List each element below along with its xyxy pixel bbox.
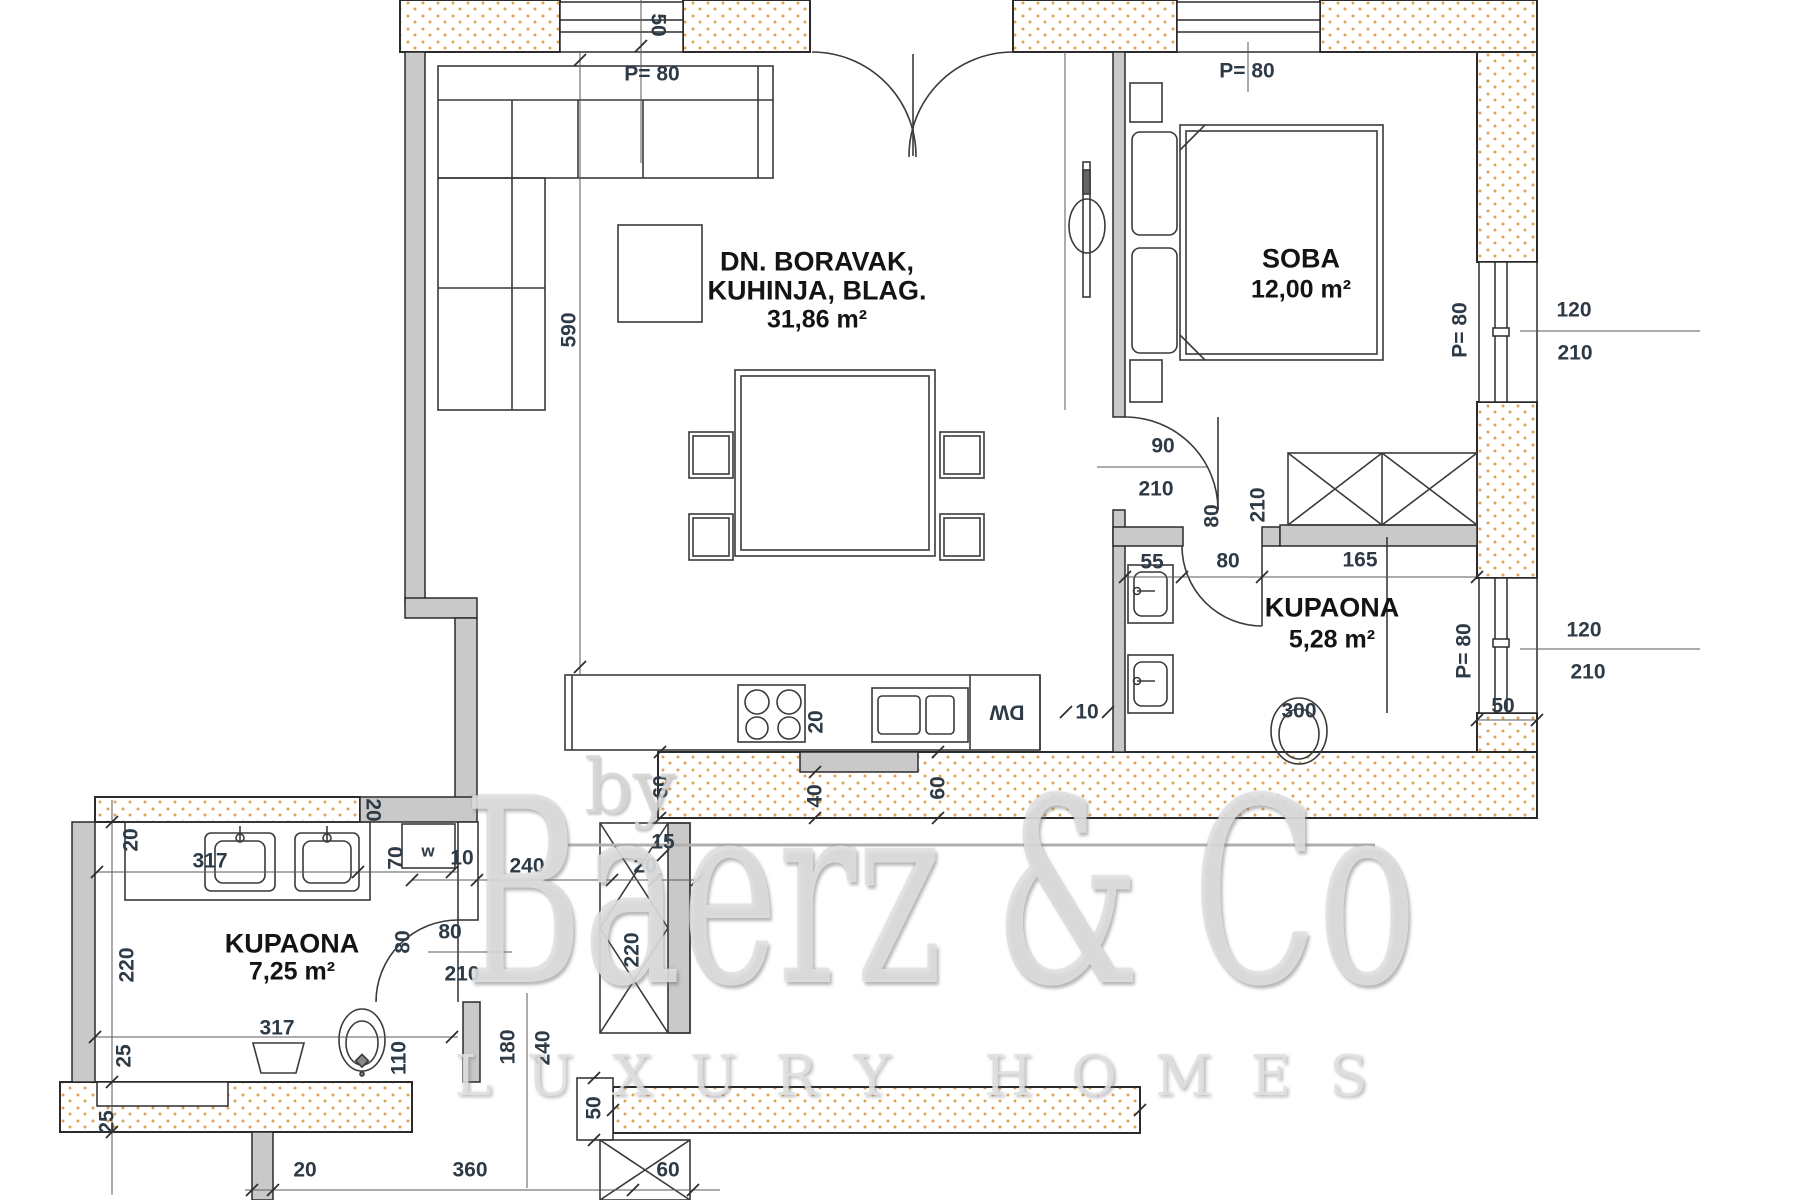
dimension-label: 590 xyxy=(559,312,580,347)
dimension-label: 70 xyxy=(386,846,407,869)
dimension-label: w xyxy=(421,843,434,860)
dimension-label: 210 xyxy=(1557,343,1592,364)
dimension-label: P= 80 xyxy=(1450,302,1471,357)
dimension-label: 360 xyxy=(452,1160,487,1181)
room-label-bedroom: 12,00 m² xyxy=(1251,278,1351,303)
dimension-label: 25 xyxy=(114,1044,135,1067)
dimension-label: 220 xyxy=(622,932,643,967)
dimension-label: 60 xyxy=(928,776,949,799)
dimension-label: 80 xyxy=(393,930,414,953)
dimension-label: 165 xyxy=(1342,550,1377,571)
dimension-label: 20 xyxy=(121,828,142,851)
room-label-bath-1: KUPAONA xyxy=(1265,595,1400,622)
plan-labels: 50P= 80P= 8059090210802105580165P= 80120… xyxy=(0,0,1800,1200)
room-label-living: DN. BORAVAK, xyxy=(720,249,914,276)
dimension-label: 210 xyxy=(444,964,479,985)
dimension-label: 60 xyxy=(656,1160,679,1181)
dimension-label: 40 xyxy=(805,784,826,807)
dimension-label: P= 80 xyxy=(1219,61,1274,82)
dimension-label: 20 xyxy=(633,856,656,877)
dimension-label: 20 xyxy=(293,1160,316,1181)
dimension-label: P= 80 xyxy=(1454,623,1475,678)
dimension-label: DW xyxy=(990,702,1025,723)
dimension-label: 80 xyxy=(1216,551,1239,572)
dimension-label: 80 xyxy=(438,922,461,943)
dimension-label: 180 xyxy=(498,1029,519,1064)
dimension-label: 10 xyxy=(1075,702,1098,723)
dimension-label: 20 xyxy=(363,798,384,821)
room-label-bath-2: 7,25 m² xyxy=(249,960,335,985)
dimension-label: 210 xyxy=(1248,487,1269,522)
dimension-label: 25 xyxy=(97,1110,118,1133)
dimension-label: 15 xyxy=(651,832,674,853)
dimension-label: 60 xyxy=(651,775,672,798)
dimension-label: 240 xyxy=(509,856,544,877)
dimension-label: 90 xyxy=(1151,436,1174,457)
room-label-bedroom: SOBA xyxy=(1262,246,1340,273)
room-label-living: 31,86 m² xyxy=(767,308,867,333)
dimension-label: 80 xyxy=(1202,504,1223,527)
room-label-living: KUHINJA, BLAG. xyxy=(707,278,926,305)
dimension-label: 240 xyxy=(533,1030,554,1065)
dimension-label: 50 xyxy=(648,13,669,36)
dimension-label: 210 xyxy=(1138,479,1173,500)
dimension-label: 20 xyxy=(806,710,827,733)
dimension-label: 50 xyxy=(1491,696,1514,717)
dimension-label: 120 xyxy=(1556,300,1591,321)
dimension-label: 300 xyxy=(1281,701,1316,722)
dimension-label: P= 80 xyxy=(624,64,679,85)
floor-plan-canvas: 50P= 80P= 8059090210802105580165P= 80120… xyxy=(0,0,1800,1200)
dimension-label: 50 xyxy=(584,1096,605,1119)
dimension-label: 110 xyxy=(389,1041,410,1075)
dimension-label: 10 xyxy=(450,848,473,869)
dimension-label: 55 xyxy=(1140,552,1163,573)
room-label-bath-2: KUPAONA xyxy=(225,931,360,958)
dimension-label: 210 xyxy=(1570,662,1605,683)
dimension-label: 317 xyxy=(259,1018,294,1039)
room-label-bath-1: 5,28 m² xyxy=(1289,628,1375,653)
dimension-label: 317 xyxy=(192,851,227,872)
dimension-label: 220 xyxy=(117,947,138,982)
dimension-label: 120 xyxy=(1566,620,1601,641)
